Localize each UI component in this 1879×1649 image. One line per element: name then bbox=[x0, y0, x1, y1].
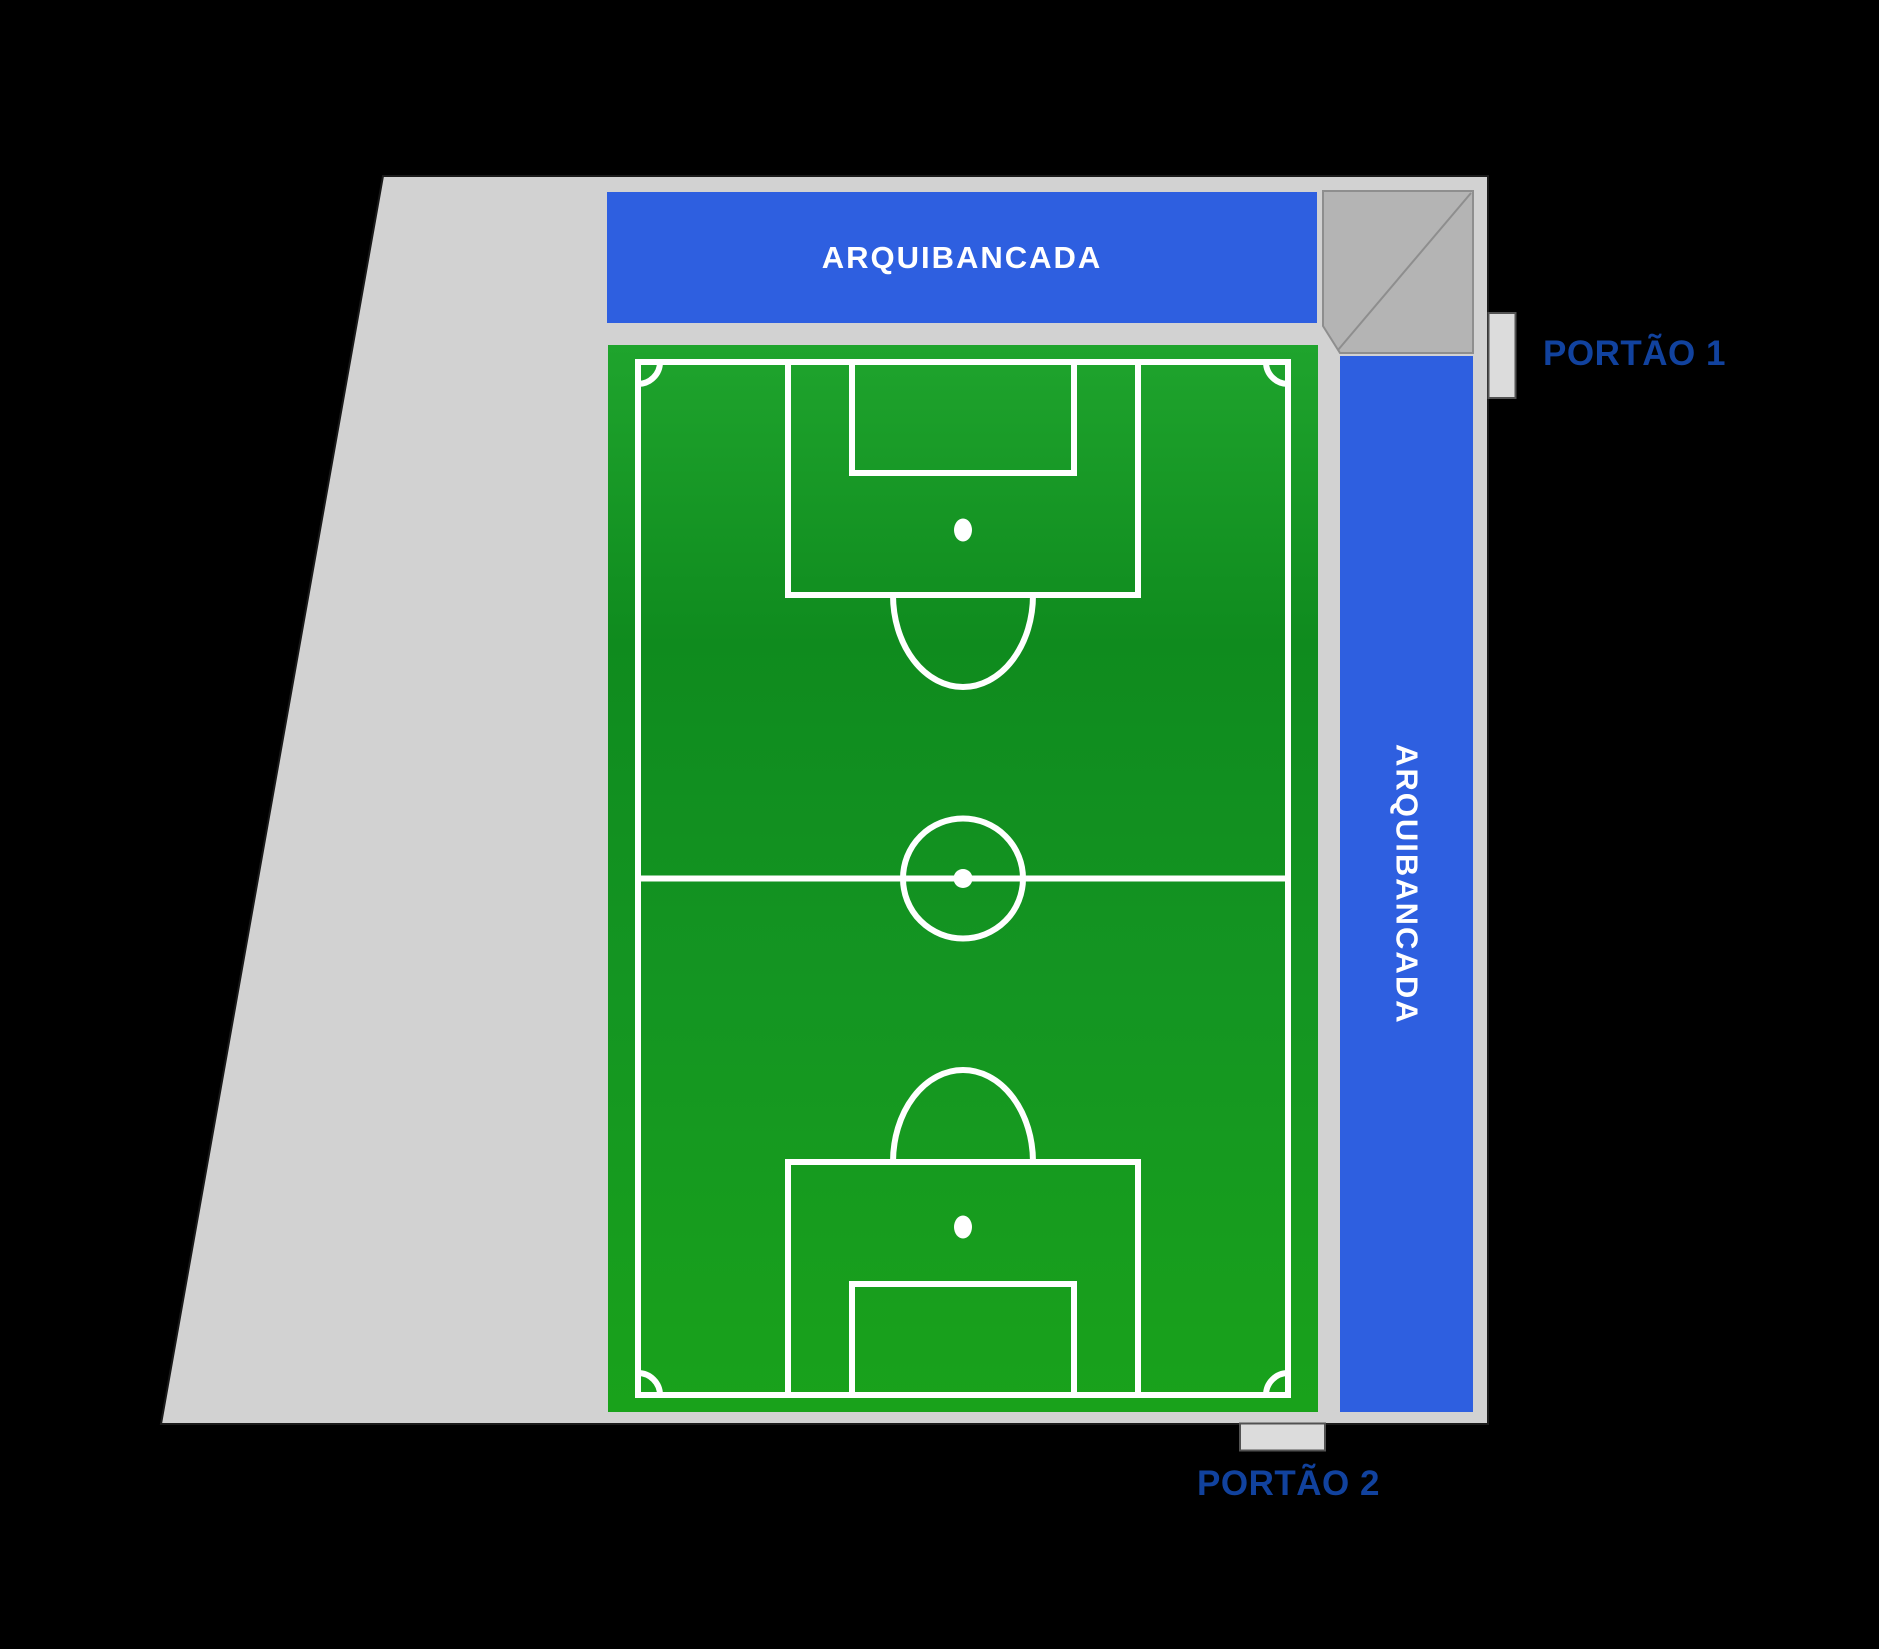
stand-top-label: ARQUIBANCADA bbox=[822, 240, 1103, 276]
gate-2 bbox=[1240, 1424, 1325, 1451]
stand-right-label: ARQUIBANCADA bbox=[1389, 744, 1425, 1025]
gate-1-label: PORTÃO 1 bbox=[1543, 336, 1726, 372]
soccer-field-svg bbox=[608, 345, 1318, 1412]
penalty-spot-bottom bbox=[954, 1216, 972, 1239]
gate-2-label: PORTÃO 2 bbox=[1197, 1466, 1380, 1502]
stand-right: ARQUIBANCADA bbox=[1340, 356, 1473, 1412]
gate-1 bbox=[1489, 313, 1516, 398]
corner-stand bbox=[1323, 191, 1473, 353]
center-spot bbox=[954, 869, 973, 888]
penalty-spot-top bbox=[954, 519, 972, 542]
soccer-field bbox=[608, 345, 1318, 1412]
stadium-map: ARQUIBANCADA ARQUIBANCADA PORTÃO 1 PORTÃ… bbox=[0, 0, 1879, 1649]
stand-top: ARQUIBANCADA bbox=[607, 192, 1317, 323]
